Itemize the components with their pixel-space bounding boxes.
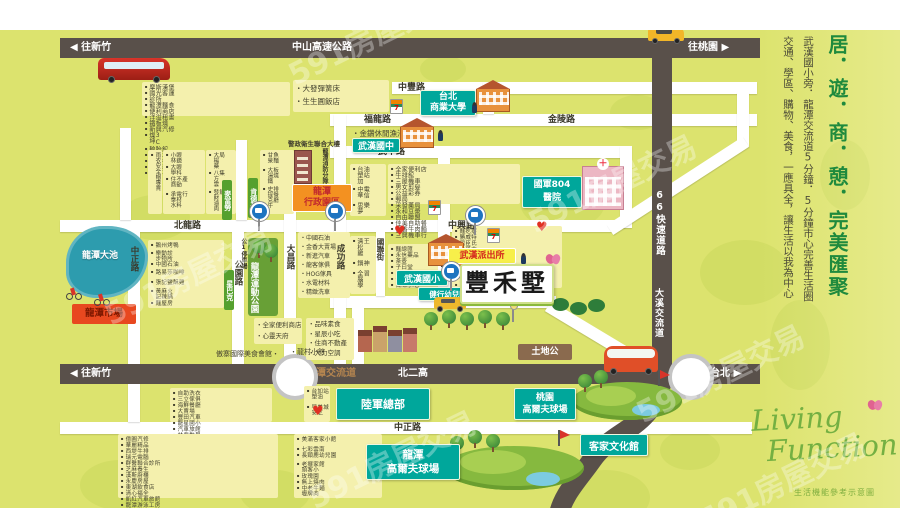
clinic-heart-icon: ♥: [394, 226, 406, 238]
taoyuan-golf-icon: [562, 368, 692, 426]
shop-label: 甘泉魚麵: [262, 152, 293, 167]
shop-label: 雨衣安全帽專賣: [150, 152, 161, 191]
shop-label: 生生圓飯店: [295, 95, 387, 108]
shop-label: 品味素食: [308, 320, 352, 330]
bicycle-icon: [66, 290, 82, 300]
mcdonalds-tag: 麥當勞: [222, 180, 232, 220]
taoyuan-golf-label: 桃園高爾夫球場: [514, 388, 576, 420]
project-name-fenghe-villa: 豐禾墅: [460, 264, 554, 304]
butterfly-icon: [546, 254, 560, 266]
tudigong-label: 土地公: [518, 344, 572, 360]
shop-label: 麵屋房: [150, 300, 223, 306]
butterfly-icon: [868, 400, 882, 412]
union-building-label: 警政衛生聯合大樓: [288, 138, 340, 148]
shop-box-top-bullets: 大發彈簧床生生圓飯店: [293, 80, 389, 112]
sidebar-headline: 居．遊．商．憩．完美匯聚: [824, 34, 850, 312]
shop-label: 鍋神: [352, 260, 375, 271]
map-canvas: ◀ 往新竹 中山高速公路 往桃園 ▶ 66快速道路 大溪交流道 ◀ 往新竹 龍潭…: [0, 0, 900, 518]
daxi-interchange-label: 大溪交流道: [652, 288, 672, 338]
shop-label: 樂步動物診所: [150, 250, 223, 262]
shop-strip-topleft: 摩斯漢堡國光客運診所龍潭麵食便利商店洋溢租書鐵板燒新興汽修燦坤3C輪胎館管樂坊樂…: [142, 82, 290, 116]
hakka-center-label: 客家文化館: [580, 434, 648, 456]
wuhan-jhs-label: 武漢國中: [352, 138, 400, 153]
dir-hsinchu-top: ◀ 往新竹: [70, 38, 111, 58]
tree-icon: [442, 310, 456, 324]
wuhan-jhs-icon: [400, 118, 434, 148]
sidebar-subtext: 武漢國小旁．龍潭交流道5分鐘．5分鐘市心完善生活圈 交通、學區、購物、美食，一應…: [778, 36, 818, 368]
restaurant-label-longcun: ・龍村小館: [290, 347, 325, 357]
bus-stop-icon: [250, 202, 269, 221]
shop-label: 精緻洗車: [300, 288, 348, 297]
seven-eleven-icon: 7: [487, 228, 500, 243]
highway-top-name: 中山高速公路: [292, 38, 352, 58]
shop-label: 大學眼科: [165, 164, 204, 176]
shop-label: 全腦學習: [352, 270, 375, 292]
highway-66-name: 66快速道路: [652, 190, 672, 256]
bus-stop-icon: [326, 202, 345, 221]
army-hq-label: 陸軍總部: [336, 388, 430, 420]
shop-label: 小林眼鏡: [165, 152, 204, 164]
shop-label: 全家便利商店: [256, 320, 300, 331]
ntub-label: 台北商業大學: [420, 90, 476, 116]
bush-icon: [570, 302, 587, 315]
coach-bus-icon: [98, 58, 170, 80]
shop-label: 燦坤3C: [144, 132, 289, 146]
shop-label: 承泰水電材料行: [165, 191, 204, 212]
person-icon: [521, 253, 526, 264]
shop-label: 黃記麻辣火鍋: [150, 288, 223, 300]
restaurant-label-aozhai: 傲寨國際美食會館・: [216, 349, 279, 359]
shop-label: 台塑加油站: [352, 166, 385, 186]
shop-label: 中國石油: [300, 234, 348, 243]
shop-strip-beilong-n-a: 雨衣安全帽專賣: [148, 150, 162, 214]
shop-label: 住商不動產: [165, 176, 204, 191]
label-fulong: 福龍路: [364, 114, 391, 126]
dir-taoyuan: 往桃園 ▶: [688, 38, 729, 58]
sidebar-line-2: 交通、學區、購物、美食，一應具全，讓生活以我為中心: [778, 36, 798, 368]
street-lamp-icon: [512, 306, 514, 322]
shop-label: 星辰小吃: [308, 330, 352, 340]
university-icon: [476, 80, 510, 112]
label-chenggong: 成功路: [334, 244, 346, 270]
seven-eleven-icon: 7: [390, 99, 403, 114]
longtan-golf-label: 龍潭高爾夫球場: [366, 444, 460, 480]
shop-label: 水電材料: [300, 279, 348, 288]
tree-icon: [478, 310, 492, 324]
shop-label: 大發彈簧床: [295, 82, 387, 95]
shop-strip-telecom: 台塑加油站中華電信思夢樂: [350, 164, 386, 216]
shop-label: HOG傢具: [300, 270, 348, 279]
shop-label: 心靈天府: [256, 331, 300, 342]
shop-label: 大楊藥局: [208, 152, 235, 170]
dir-hsinchu-bottom: ◀ 往新竹: [70, 364, 111, 384]
shop-strip-wuzhong-s: 全家便利店牛排館三屋機車男女剪髮公益彩券郵局采發藥局永和豆漿自由聯盟佳美自助餐日…: [388, 164, 520, 204]
hospital-icon: [582, 166, 624, 210]
tree-icon: [264, 244, 278, 258]
union-building-icon: [294, 150, 312, 184]
police-station-label: 武漢派出所: [448, 248, 516, 264]
label-jinling: 金陵路: [548, 114, 575, 126]
seven-eleven-icon: 7: [428, 200, 441, 215]
shop-label: 張記鹽酥雞: [150, 279, 223, 289]
label-zhongzheng: 中正路: [394, 422, 421, 434]
market-label: 龍潭市場: [72, 304, 136, 324]
lake-label: 龍潭大池: [82, 248, 118, 261]
shop-label: 中國石油: [150, 261, 223, 269]
label-dachang: 大昌路: [284, 244, 296, 270]
sidebar-line-1: 武漢國小旁．龍潭交流道5分鐘．5分鐘市心完善生活圈: [798, 36, 818, 368]
bush-icon: [552, 298, 569, 311]
highway-beiergao-name: 北二高: [398, 364, 428, 384]
tree-icon: [460, 312, 474, 326]
label-guolian: 國聯街: [374, 238, 386, 261]
shop-strip-beilong-s: 鵝州烤鴨樂步動物診所中國石油路易莎咖啡張記鹽酥雞黃記麻辣火鍋麵屋房: [148, 240, 224, 308]
person-icon: [472, 102, 477, 113]
label-zhongzheng-v: 中正路: [128, 246, 140, 272]
shop-label: 思夢樂: [352, 202, 385, 214]
bush-icon: [588, 299, 605, 312]
fire-dept-label: 龍潭消防分隊: [318, 148, 330, 184]
clinic-heart-icon: ♥: [312, 406, 324, 418]
shop-label: 中壢老牌牛肉麵: [296, 485, 381, 496]
vw-bus-icon: [604, 346, 658, 372]
shop-label: 中華電信: [352, 186, 385, 202]
bus-stop-icon: [466, 206, 485, 225]
wuhan-es-label: 武漢國小: [396, 270, 448, 286]
branding-caption: 生活機能參考示意圖: [794, 487, 875, 498]
starbucks-tag: 星巴克: [224, 270, 234, 310]
shop-strip-beilong-n-b: 小林眼鏡大學眼科住商不動產承泰水電材料行: [163, 150, 205, 214]
shop-box-jianxing-a: 全家便利商店心靈天府: [254, 318, 302, 344]
parking-label: 公1停車場: [237, 238, 249, 269]
shop-strip-chenggong-e: 清松雞王鍋神全腦學習: [350, 236, 376, 294]
shop-label: 大湯鐵板燒: [262, 167, 293, 186]
shop-strip-zhongzheng-sw: 億圓汽修華麗精品西堤牛排瑞元電腦群醫聯合診所芝麻養生漢斯廚櫃永慶房屋東湖飲食店清…: [118, 434, 278, 498]
bus-stop-icon: [442, 262, 461, 281]
shop-label: 台塑加油站: [306, 388, 329, 404]
bicycle-icon: [94, 296, 110, 306]
shop-label: 清松雞王: [352, 238, 375, 260]
townhouses-icon: [358, 326, 418, 352]
tree-icon: [424, 312, 438, 326]
top-margin: [0, 0, 900, 30]
bottom-margin: [0, 508, 900, 518]
tree-icon: [496, 312, 510, 326]
shop-label: 鵝州烤鴨: [150, 242, 223, 250]
label-beilong: 北龍路: [174, 220, 201, 232]
person-icon: [438, 130, 443, 141]
hospital-804-label: 國軍804醫院: [522, 176, 582, 208]
clinic-heart-icon: ♥: [536, 222, 548, 234]
shop-label: 路易莎咖啡: [150, 269, 223, 279]
shop-strip-band-s: 自助洗衣三立傢俱海鮮餐廳大賣場豐田汽車龍星國小汽車旅館林鼎數學國泰人壽: [170, 388, 272, 422]
